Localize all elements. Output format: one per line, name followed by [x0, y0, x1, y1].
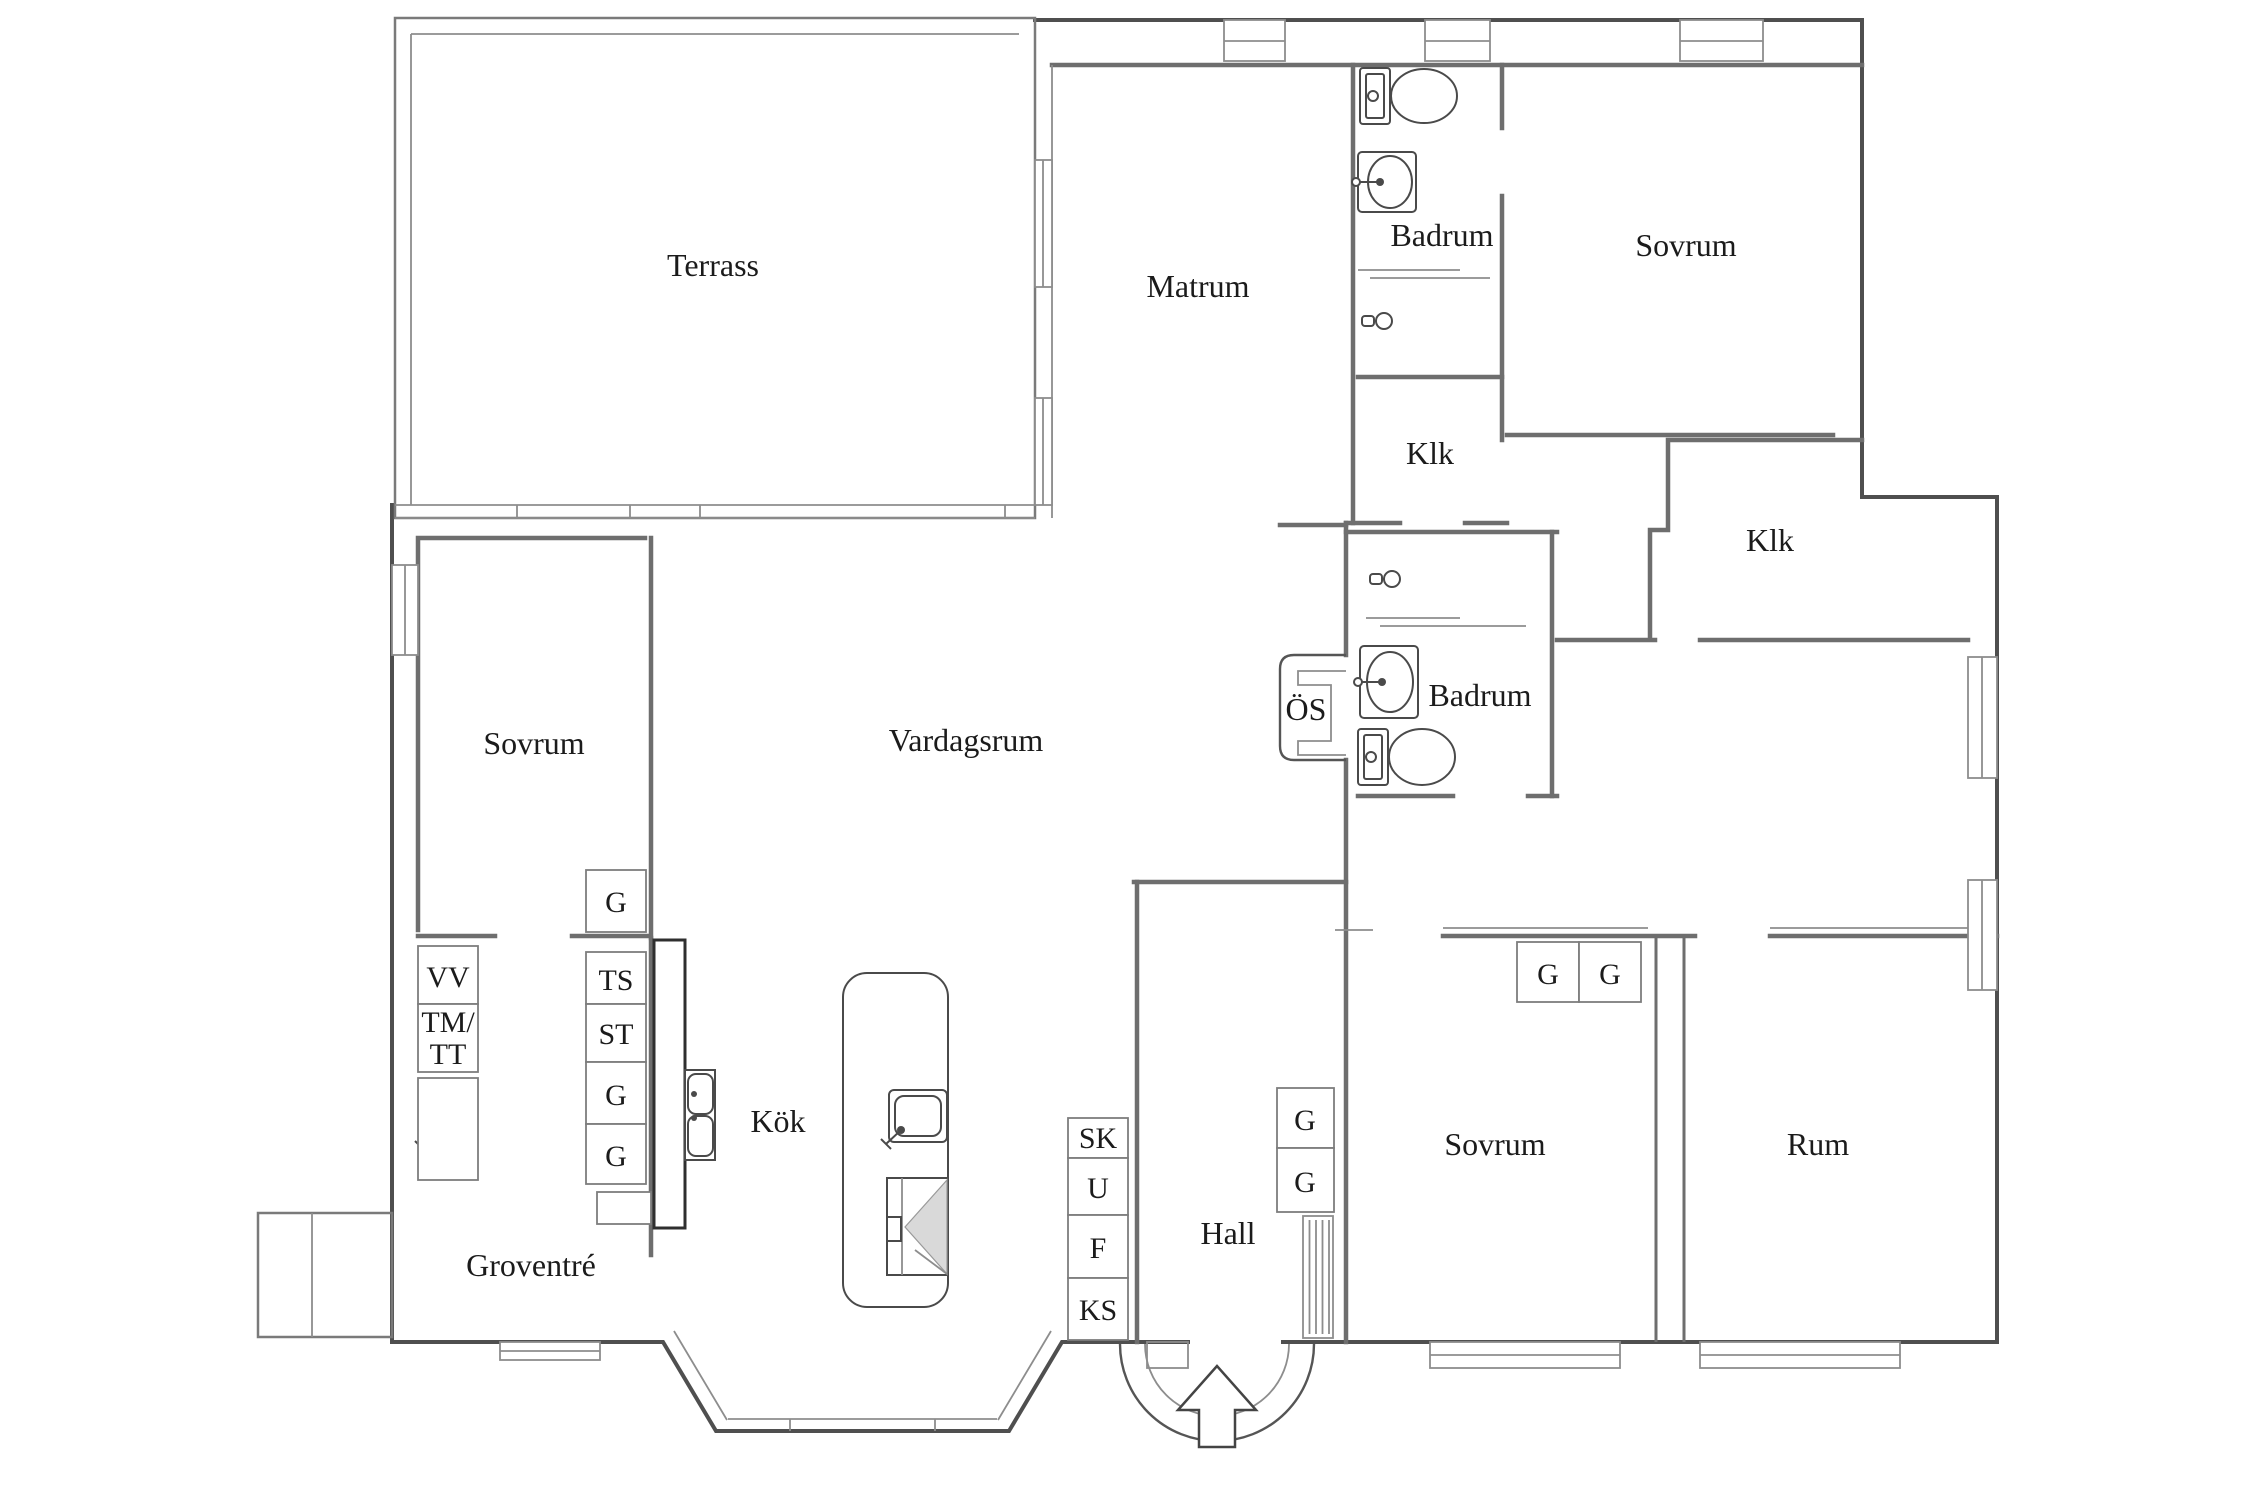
shelf-lines: [1358, 270, 1490, 278]
closet-box: [418, 1078, 478, 1180]
double-sink-icon: [685, 1070, 715, 1160]
closet-label-g: G: [1294, 1104, 1316, 1137]
room-label-klk-right: Klk: [1746, 522, 1794, 558]
closet-label-tm: TM/: [421, 1006, 475, 1039]
entrance: [1120, 1342, 1314, 1447]
floorplan-page: Terrass Matrum Badrum Sovrum Klk Klk Sov…: [0, 0, 2250, 1500]
room-label-sovrum-bottom: Sovrum: [1444, 1126, 1545, 1162]
room-label-os: ÖS: [1286, 691, 1327, 727]
closet-label-g: G: [1599, 958, 1621, 991]
room-label-badrum-mid: Badrum: [1428, 677, 1531, 713]
island-sink-icon: [881, 1090, 947, 1149]
closet-label-sk: SK: [1079, 1122, 1118, 1155]
room-label-kok: Kök: [750, 1103, 805, 1139]
entrance-arrow-icon: [1178, 1366, 1256, 1447]
badrum-top-fixtures: [1352, 68, 1490, 329]
shelf-lines: [1366, 618, 1526, 626]
storage-boxes: [418, 870, 1641, 1340]
closet-label-st: ST: [598, 1018, 633, 1051]
room-label-sovrum-left: Sovrum: [483, 725, 584, 761]
closet-box: [597, 1192, 651, 1224]
room-label-klk-top: Klk: [1406, 435, 1454, 471]
room-label-hall: Hall: [1200, 1215, 1255, 1251]
stoop-outline: [258, 1213, 392, 1337]
closet-label-ks: KS: [1079, 1294, 1117, 1327]
toilet-icon: [1358, 729, 1455, 785]
closet-label-g: G: [1294, 1166, 1316, 1199]
closet-label-ts: TS: [598, 964, 633, 997]
room-label-vardagsrum: Vardagsrum: [889, 722, 1044, 758]
kitchen-counter: [654, 940, 685, 1228]
floorplan-svg: Terrass Matrum Badrum Sovrum Klk Klk Sov…: [0, 0, 2250, 1500]
closet-label-g: G: [605, 1079, 627, 1112]
room-label-sovrum-top: Sovrum: [1635, 227, 1736, 263]
shower-head-icon: [1370, 571, 1400, 587]
room-label-badrum-top: Badrum: [1390, 217, 1493, 253]
closet-label-f: F: [1090, 1232, 1107, 1265]
toilet-icon: [1360, 68, 1457, 124]
room-label-rum: Rum: [1787, 1126, 1849, 1162]
room-label-terrass: Terrass: [667, 247, 759, 283]
sink-icon: [1352, 152, 1416, 212]
closet-label-tt: TT: [430, 1038, 467, 1071]
room-label-matrum: Matrum: [1146, 268, 1249, 304]
closet-label-u: U: [1087, 1172, 1109, 1205]
closet-label-g: G: [605, 1140, 627, 1173]
stove-icon: [887, 1178, 948, 1275]
room-label-groventre: Groventré: [466, 1247, 596, 1283]
closet-label-g: G: [1537, 958, 1559, 991]
radiator-icon: [1303, 1216, 1333, 1338]
shower-head-icon: [1362, 313, 1392, 329]
closet-label-g: G: [605, 886, 627, 919]
closet-label-vv: VV: [426, 961, 470, 994]
sink-icon: [1354, 646, 1418, 718]
